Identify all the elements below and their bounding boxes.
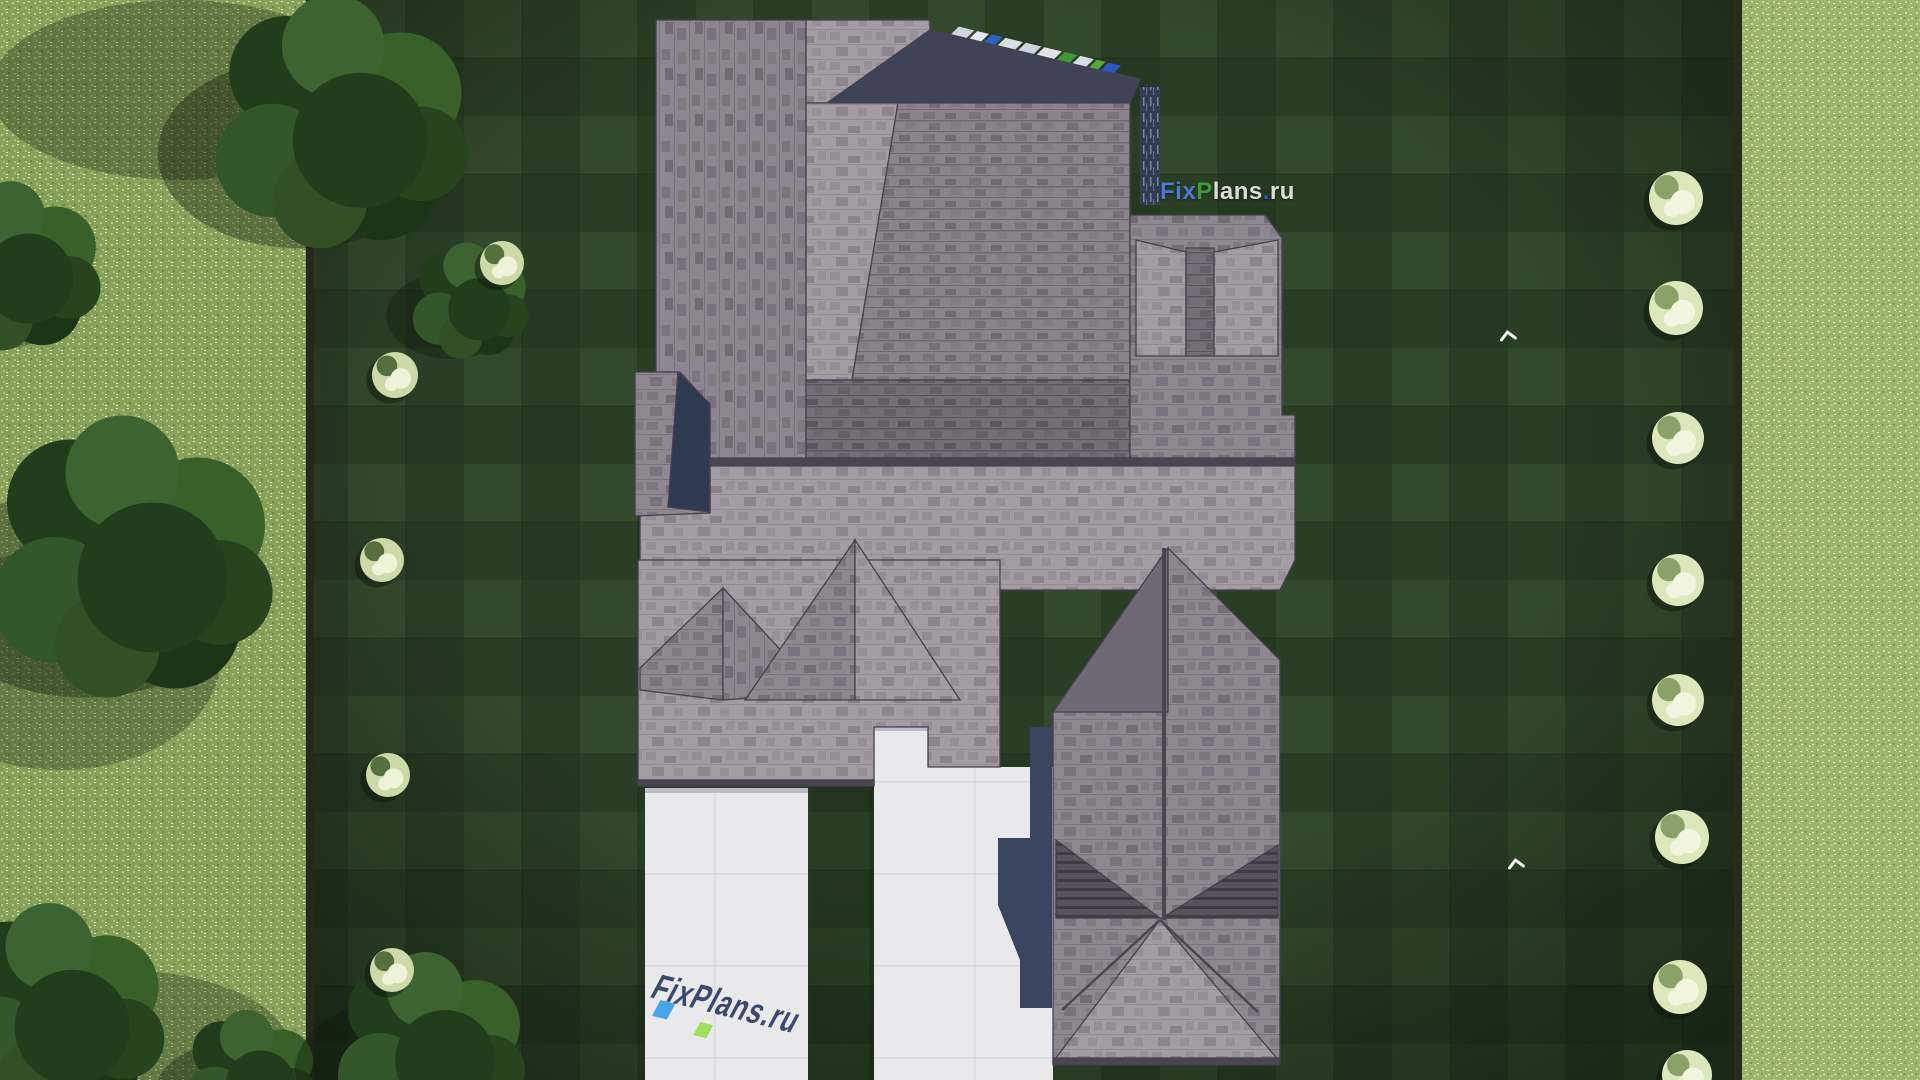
bush-highlight [1666, 441, 1682, 457]
bush-highlight [1670, 840, 1686, 856]
grass-strip-shade [812, 770, 874, 1080]
valley-slope-right [1214, 240, 1278, 356]
eave-line [638, 780, 874, 786]
bush-highlight [385, 377, 399, 391]
right-meadow [1742, 0, 1920, 1080]
hedge-wall [1140, 87, 1160, 205]
canopy-blob [78, 503, 228, 653]
roof-dark-band [806, 380, 1130, 458]
bush-highlight [1664, 201, 1680, 217]
watermark-ru: ru [1270, 178, 1295, 205]
bush-highlight [1664, 311, 1680, 327]
bush-highlight [1666, 583, 1682, 599]
canopy-blob [15, 970, 130, 1080]
watermark-p: P [1196, 178, 1213, 205]
watermark-fix: Fix [1160, 178, 1196, 205]
bush-highlight [1668, 990, 1684, 1006]
fixplans-watermark: FixPlans.ru [1160, 178, 1295, 206]
canopy-blob [293, 73, 428, 208]
roof-north-slope [852, 103, 1130, 380]
watermark-dot: . [1263, 178, 1270, 205]
aerial-house-render: FixPlans.ru FixPlans.ru [0, 0, 1920, 1080]
valley-center [1186, 248, 1214, 356]
strip-block [1101, 63, 1121, 73]
bush-highlight [1666, 703, 1682, 719]
watermark-lans: lans [1213, 178, 1263, 205]
bush-highlight [492, 265, 505, 278]
bush-highlight [378, 777, 391, 790]
eave-line [1053, 1058, 1280, 1065]
main-ridge [650, 458, 1295, 466]
scene-canvas [0, 0, 1920, 1080]
bush-highlight [382, 972, 395, 985]
driveway-edge-shadow [645, 788, 808, 793]
bush-highlight [372, 562, 385, 575]
valley-slope-left [1136, 240, 1186, 356]
front-walkway [874, 727, 928, 1080]
right-fence [1734, 0, 1742, 1080]
